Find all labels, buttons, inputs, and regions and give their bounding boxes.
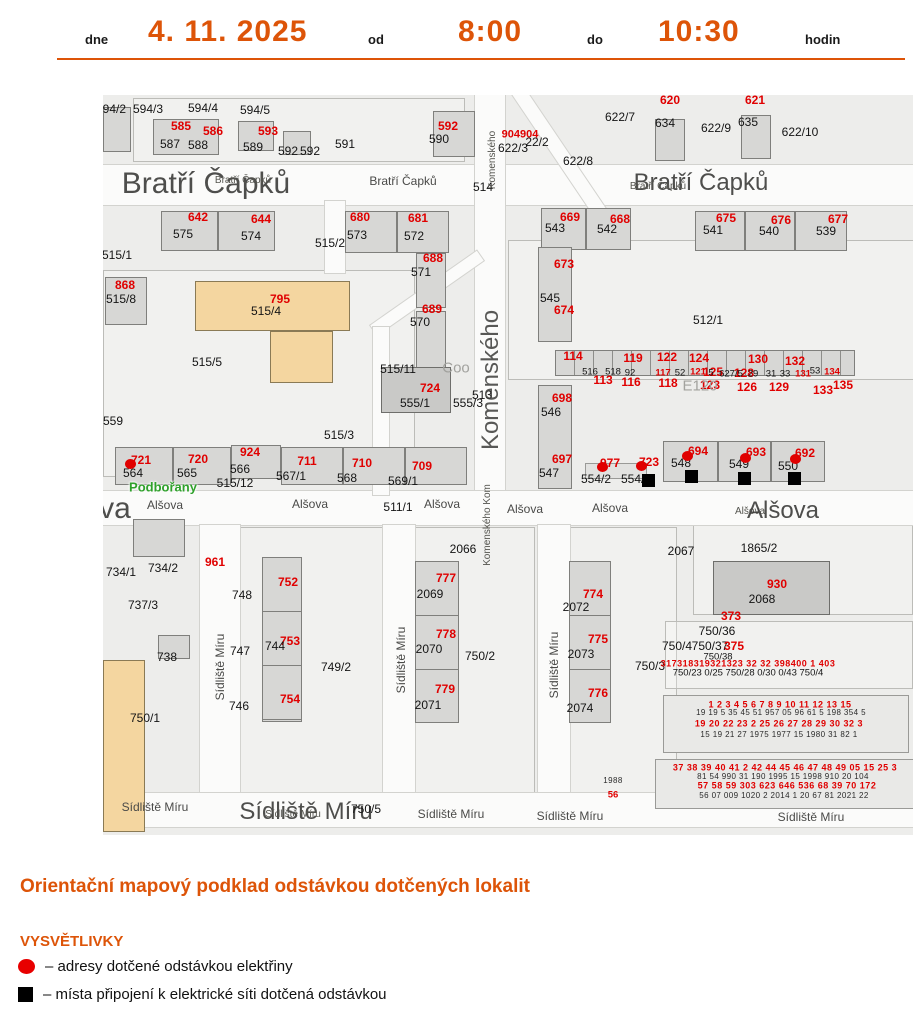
map-label: 588	[188, 139, 208, 151]
outage-map: 594/2594/3594/4594/558558658758859358959…	[103, 95, 913, 835]
map-label: 868	[115, 279, 135, 291]
map-label: 134	[824, 367, 840, 377]
map-label: 5	[708, 368, 713, 378]
map-label: 571	[411, 266, 431, 278]
building-shape	[270, 331, 333, 383]
map-label: 589	[243, 141, 263, 153]
map-label: 2067	[668, 545, 695, 557]
map-label: 546	[541, 406, 561, 418]
map-label: 126	[737, 381, 757, 393]
map-label: Sídliště Míru	[395, 627, 407, 694]
map-label: Sídliště Míru	[214, 634, 226, 701]
map-label: 554/2	[581, 473, 611, 485]
map-label: 568	[337, 472, 357, 484]
map-label: 750/1	[130, 712, 160, 724]
legend-item-label: – místa připojení k elektrické síti dotč…	[43, 986, 387, 1003]
map-label: Komenského Kom	[483, 484, 493, 566]
building-shape	[133, 519, 185, 557]
map-label: 748	[232, 589, 252, 601]
map-label: 594/5	[240, 104, 270, 116]
map-label: 590	[429, 133, 449, 145]
map-label: 22/2	[525, 136, 548, 148]
map-label: 515/11	[380, 363, 416, 375]
map-label: 541	[703, 224, 723, 236]
map-label: Alšova	[507, 503, 543, 515]
map-label: Sídliště Míru	[265, 810, 321, 820]
affected-address-marker	[790, 454, 801, 464]
map-label: Sídliště Míru	[122, 801, 189, 813]
map-label: 587	[160, 138, 180, 150]
header-divider	[57, 58, 905, 60]
map-label: 2070	[416, 643, 443, 655]
map-label: 586	[203, 125, 223, 137]
map-label: 547	[539, 467, 559, 479]
map-label: 585	[171, 120, 191, 132]
map-label: 622/9	[701, 122, 731, 134]
map-label: 688	[423, 252, 443, 264]
map-label: 129	[769, 381, 789, 393]
map-label: 566	[230, 463, 250, 475]
map-label: 2074	[567, 702, 594, 714]
map-label: 572	[404, 230, 424, 242]
map-label: 515/8	[106, 293, 136, 305]
map-label: 744	[265, 640, 285, 652]
map-label: 680	[350, 211, 370, 223]
map-label: 627/5	[719, 369, 743, 379]
map-label: 622/7	[605, 111, 635, 123]
map-label: 737/3	[128, 599, 158, 611]
map-label: 116	[621, 376, 640, 388]
map-label: 750/5	[351, 803, 381, 815]
map-label: 752	[278, 576, 298, 588]
affected-address-marker	[636, 461, 647, 471]
map-label: 2071	[415, 699, 442, 711]
outage-date: 4. 11. 2025	[148, 15, 307, 49]
map-label: 515/3	[324, 429, 354, 441]
map-label: 515/4	[251, 305, 281, 317]
map-label: 749/2	[321, 661, 351, 673]
time-from: 8:00	[458, 15, 522, 49]
map-label: 738	[157, 651, 177, 663]
map-label: 373	[721, 610, 741, 622]
map-label: 53	[810, 366, 821, 376]
map-label: 750/23 0/25 750/28 0/30 0/43 750/4	[673, 668, 824, 678]
map-label: 635	[738, 116, 758, 128]
map-label: va	[103, 494, 131, 524]
map-label: 750/36	[699, 625, 736, 637]
map-label: 746	[229, 700, 249, 712]
map-label: 119	[623, 352, 642, 364]
map-label: 515/12	[217, 477, 254, 489]
map-label: 681	[408, 212, 428, 224]
map-label: Alšova	[424, 498, 460, 510]
map-label: 113	[593, 374, 612, 386]
map-label: Bratří Čapků	[630, 182, 686, 192]
map-label: 2066	[450, 543, 477, 555]
map-label: 33	[780, 369, 791, 379]
map-label: Komenského	[488, 131, 498, 189]
map-label: Sídliště Míru	[418, 808, 485, 820]
map-label: 747	[230, 645, 250, 657]
map-label: 591	[335, 138, 355, 150]
map-label: 750/37	[692, 640, 729, 652]
black-square-icon	[18, 987, 33, 1002]
od-label: od	[368, 32, 384, 47]
map-label: 592	[438, 120, 458, 132]
map-label: Bratří Čapků	[369, 175, 436, 187]
legend-item-affected-addresses: – adresy dotčené odstávkou elektřiny	[18, 958, 293, 975]
map-label: 29	[748, 369, 759, 379]
map-label: 710	[352, 457, 372, 469]
map-label: 697	[552, 453, 572, 465]
map-label: 2072	[563, 601, 590, 613]
affected-address-marker	[682, 451, 693, 461]
map-label: 540	[759, 225, 779, 237]
map-label: 620	[660, 95, 680, 106]
map-label: Alšova	[292, 498, 328, 510]
map-label: 709	[412, 460, 432, 472]
map-label: 564	[123, 467, 143, 479]
map-label: 555/1	[400, 397, 430, 409]
map-label: 642	[188, 211, 208, 223]
map-label: Alšova	[747, 499, 819, 523]
map-label: 511/1	[383, 501, 412, 513]
connection-point-marker	[685, 470, 698, 483]
map-label: 673	[554, 258, 574, 270]
map-label: 56	[608, 790, 619, 800]
map-label: 734/1	[106, 566, 136, 578]
map-label: 775	[588, 633, 608, 645]
do-label: do	[587, 32, 603, 47]
map-label: 31	[766, 369, 777, 379]
map-label: 592	[278, 145, 298, 157]
map-label: 779	[435, 683, 455, 695]
affected-address-marker	[125, 459, 136, 469]
map-label: 622/8	[563, 155, 593, 167]
map-label: 750/2	[465, 650, 495, 662]
map-label: 121	[690, 367, 706, 377]
map-label: 118	[658, 377, 677, 389]
map-label: 622/3	[498, 142, 528, 154]
map-label: 724	[420, 382, 440, 394]
map-label: 515/1	[103, 249, 132, 261]
map-label: E120	[682, 379, 717, 394]
red-dot-icon	[18, 959, 35, 974]
legend-item-label: – adresy dotčené odstávkou elektřiny	[45, 958, 293, 975]
map-label: Alšova	[592, 502, 628, 514]
map-label: 750/4	[662, 640, 692, 652]
map-label: 565	[177, 467, 197, 479]
map-label: 594/2	[103, 103, 126, 115]
map-label: 622/10	[782, 126, 819, 138]
hodin-label: hodin	[805, 32, 840, 47]
map-label: 634	[655, 117, 675, 129]
dne-label: dne	[85, 32, 108, 47]
map-label: 776	[588, 687, 608, 699]
map-label: 961	[205, 556, 225, 568]
map-label: 621	[745, 95, 765, 106]
connection-point-marker	[642, 474, 655, 487]
map-label: Sídliště Míru	[537, 810, 604, 822]
map-label: 2068	[749, 593, 776, 605]
map-label: 56 07 009 1020 2 2014 1 20 67 81 2021 22	[699, 792, 868, 800]
map-label: 2073	[568, 648, 595, 660]
map-label: 131	[795, 369, 811, 379]
map-label: Bratří Čapků	[215, 176, 271, 186]
map-label: 674	[554, 304, 574, 316]
map-label: 711	[297, 455, 316, 467]
map-label: Alšova	[147, 499, 183, 511]
map-label: 575	[173, 228, 193, 240]
map-label: 644	[251, 213, 271, 225]
map-label: 594/3	[133, 103, 163, 115]
map-label: 543	[545, 222, 565, 234]
map-label: 515/2	[315, 237, 345, 249]
map-label: 594/4	[188, 102, 218, 114]
affected-address-marker	[740, 453, 751, 463]
map-caption: Orientační mapový podklad odstávkou dotč…	[20, 876, 530, 898]
map-label: 512/1	[693, 314, 723, 326]
map-label: 542	[597, 223, 617, 235]
map-label: 132	[785, 355, 805, 367]
map-label: 515/5	[192, 356, 222, 368]
map-label: 573	[347, 229, 367, 241]
map-label: 567/1	[276, 470, 306, 482]
map-label: 774	[583, 588, 603, 600]
map-label: 689	[422, 303, 442, 315]
map-label: 1988	[603, 777, 622, 785]
connection-point-marker	[738, 472, 751, 485]
map-label: 570	[410, 316, 430, 328]
map-label: 133	[813, 384, 833, 396]
map-label: 375	[724, 640, 744, 652]
map-label: 124	[689, 352, 709, 364]
map-label: 754	[280, 693, 300, 705]
legend-title: VYSVĚTLIVKY	[20, 933, 123, 950]
map-label: 114	[563, 350, 582, 362]
map-label: 19 20 22 23 2 25 26 27 28 29 30 32 3	[695, 720, 863, 729]
map-label: 734/2	[148, 562, 178, 574]
map-label: Komenského	[479, 310, 503, 450]
map-label: 2069	[417, 588, 444, 600]
map-label: 539	[816, 225, 836, 237]
map-label: 593	[258, 125, 278, 137]
map-label: 1865/2	[741, 542, 778, 554]
map-label: Coo	[442, 361, 470, 376]
map-label: 19 19 5 35 45 51 957 05 96 61 5 198 354 …	[696, 709, 866, 717]
map-label: 930	[767, 578, 787, 590]
map-label: 698	[552, 392, 572, 404]
time-to: 10:30	[658, 15, 740, 49]
map-label: Podbořany	[129, 481, 197, 494]
map-label: Sídliště Míru	[778, 811, 845, 823]
map-label: 592	[300, 145, 320, 157]
map-label: 569/1	[388, 475, 418, 487]
legend-item-connection-points: – místa připojení k elektrické síti dotč…	[18, 986, 387, 1003]
map-label: 122	[657, 351, 677, 363]
map-label: 135	[833, 379, 853, 391]
map-label: 15 19 21 27 1975 1977 15 1980 31 82 1	[700, 731, 857, 739]
map-label: 57 58 59 303 623 646 536 68 39 70 172	[698, 782, 877, 791]
map-label: 574	[241, 230, 261, 242]
map-label: Sídliště Míru	[548, 632, 560, 699]
map-label: 130	[748, 353, 768, 365]
affected-address-marker	[597, 462, 608, 472]
map-label: 924	[240, 446, 260, 458]
connection-point-marker	[788, 472, 801, 485]
map-label: 720	[188, 453, 208, 465]
map-label: 778	[436, 628, 456, 640]
map-label: 777	[436, 572, 456, 584]
map-label: 559	[103, 415, 123, 427]
